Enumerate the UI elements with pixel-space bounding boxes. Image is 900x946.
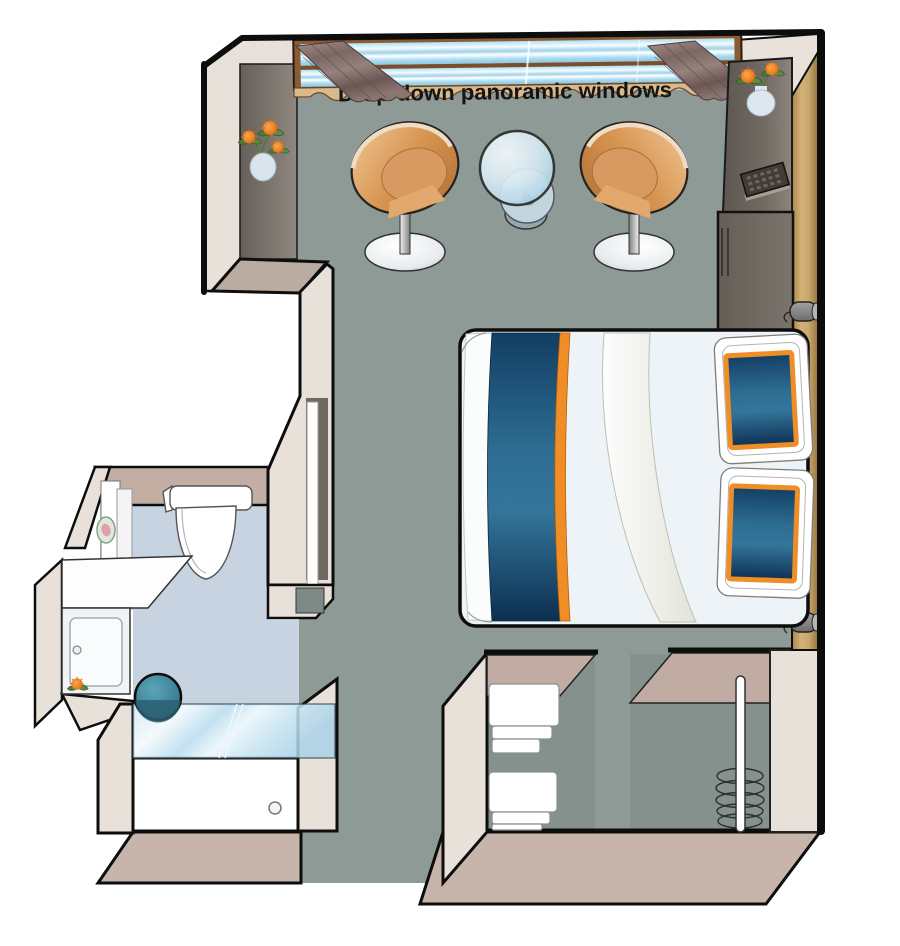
- wardrobe-right-wall: [770, 650, 820, 832]
- floor-plan: Drop-down panoramic windows: [0, 0, 900, 946]
- lower-cabinet: [718, 212, 793, 333]
- double-bed: [460, 330, 814, 626]
- shower-tray: [133, 758, 300, 831]
- table-glass-top: [480, 131, 554, 205]
- shower-stool: [135, 674, 181, 723]
- wardrobe-rail: [736, 676, 745, 832]
- pillow-lower: [717, 467, 814, 598]
- shower-door-panel2: [117, 489, 132, 567]
- floor-plan-page: Drop-down panoramic windows: [0, 0, 900, 946]
- vanity-cabinet: [62, 608, 130, 694]
- bottom-wall: [420, 832, 820, 904]
- bed-runner: [488, 333, 561, 621]
- shower-bottom-wall: [98, 832, 301, 883]
- vanity-outer-wall: [35, 560, 62, 726]
- sliding-door: [307, 402, 318, 594]
- cosmetic-mirror: [97, 517, 115, 543]
- desk-unit: [718, 58, 793, 333]
- pillow-upper: [714, 334, 813, 465]
- drain-icon: [269, 802, 281, 814]
- wall-end-top: [296, 588, 324, 613]
